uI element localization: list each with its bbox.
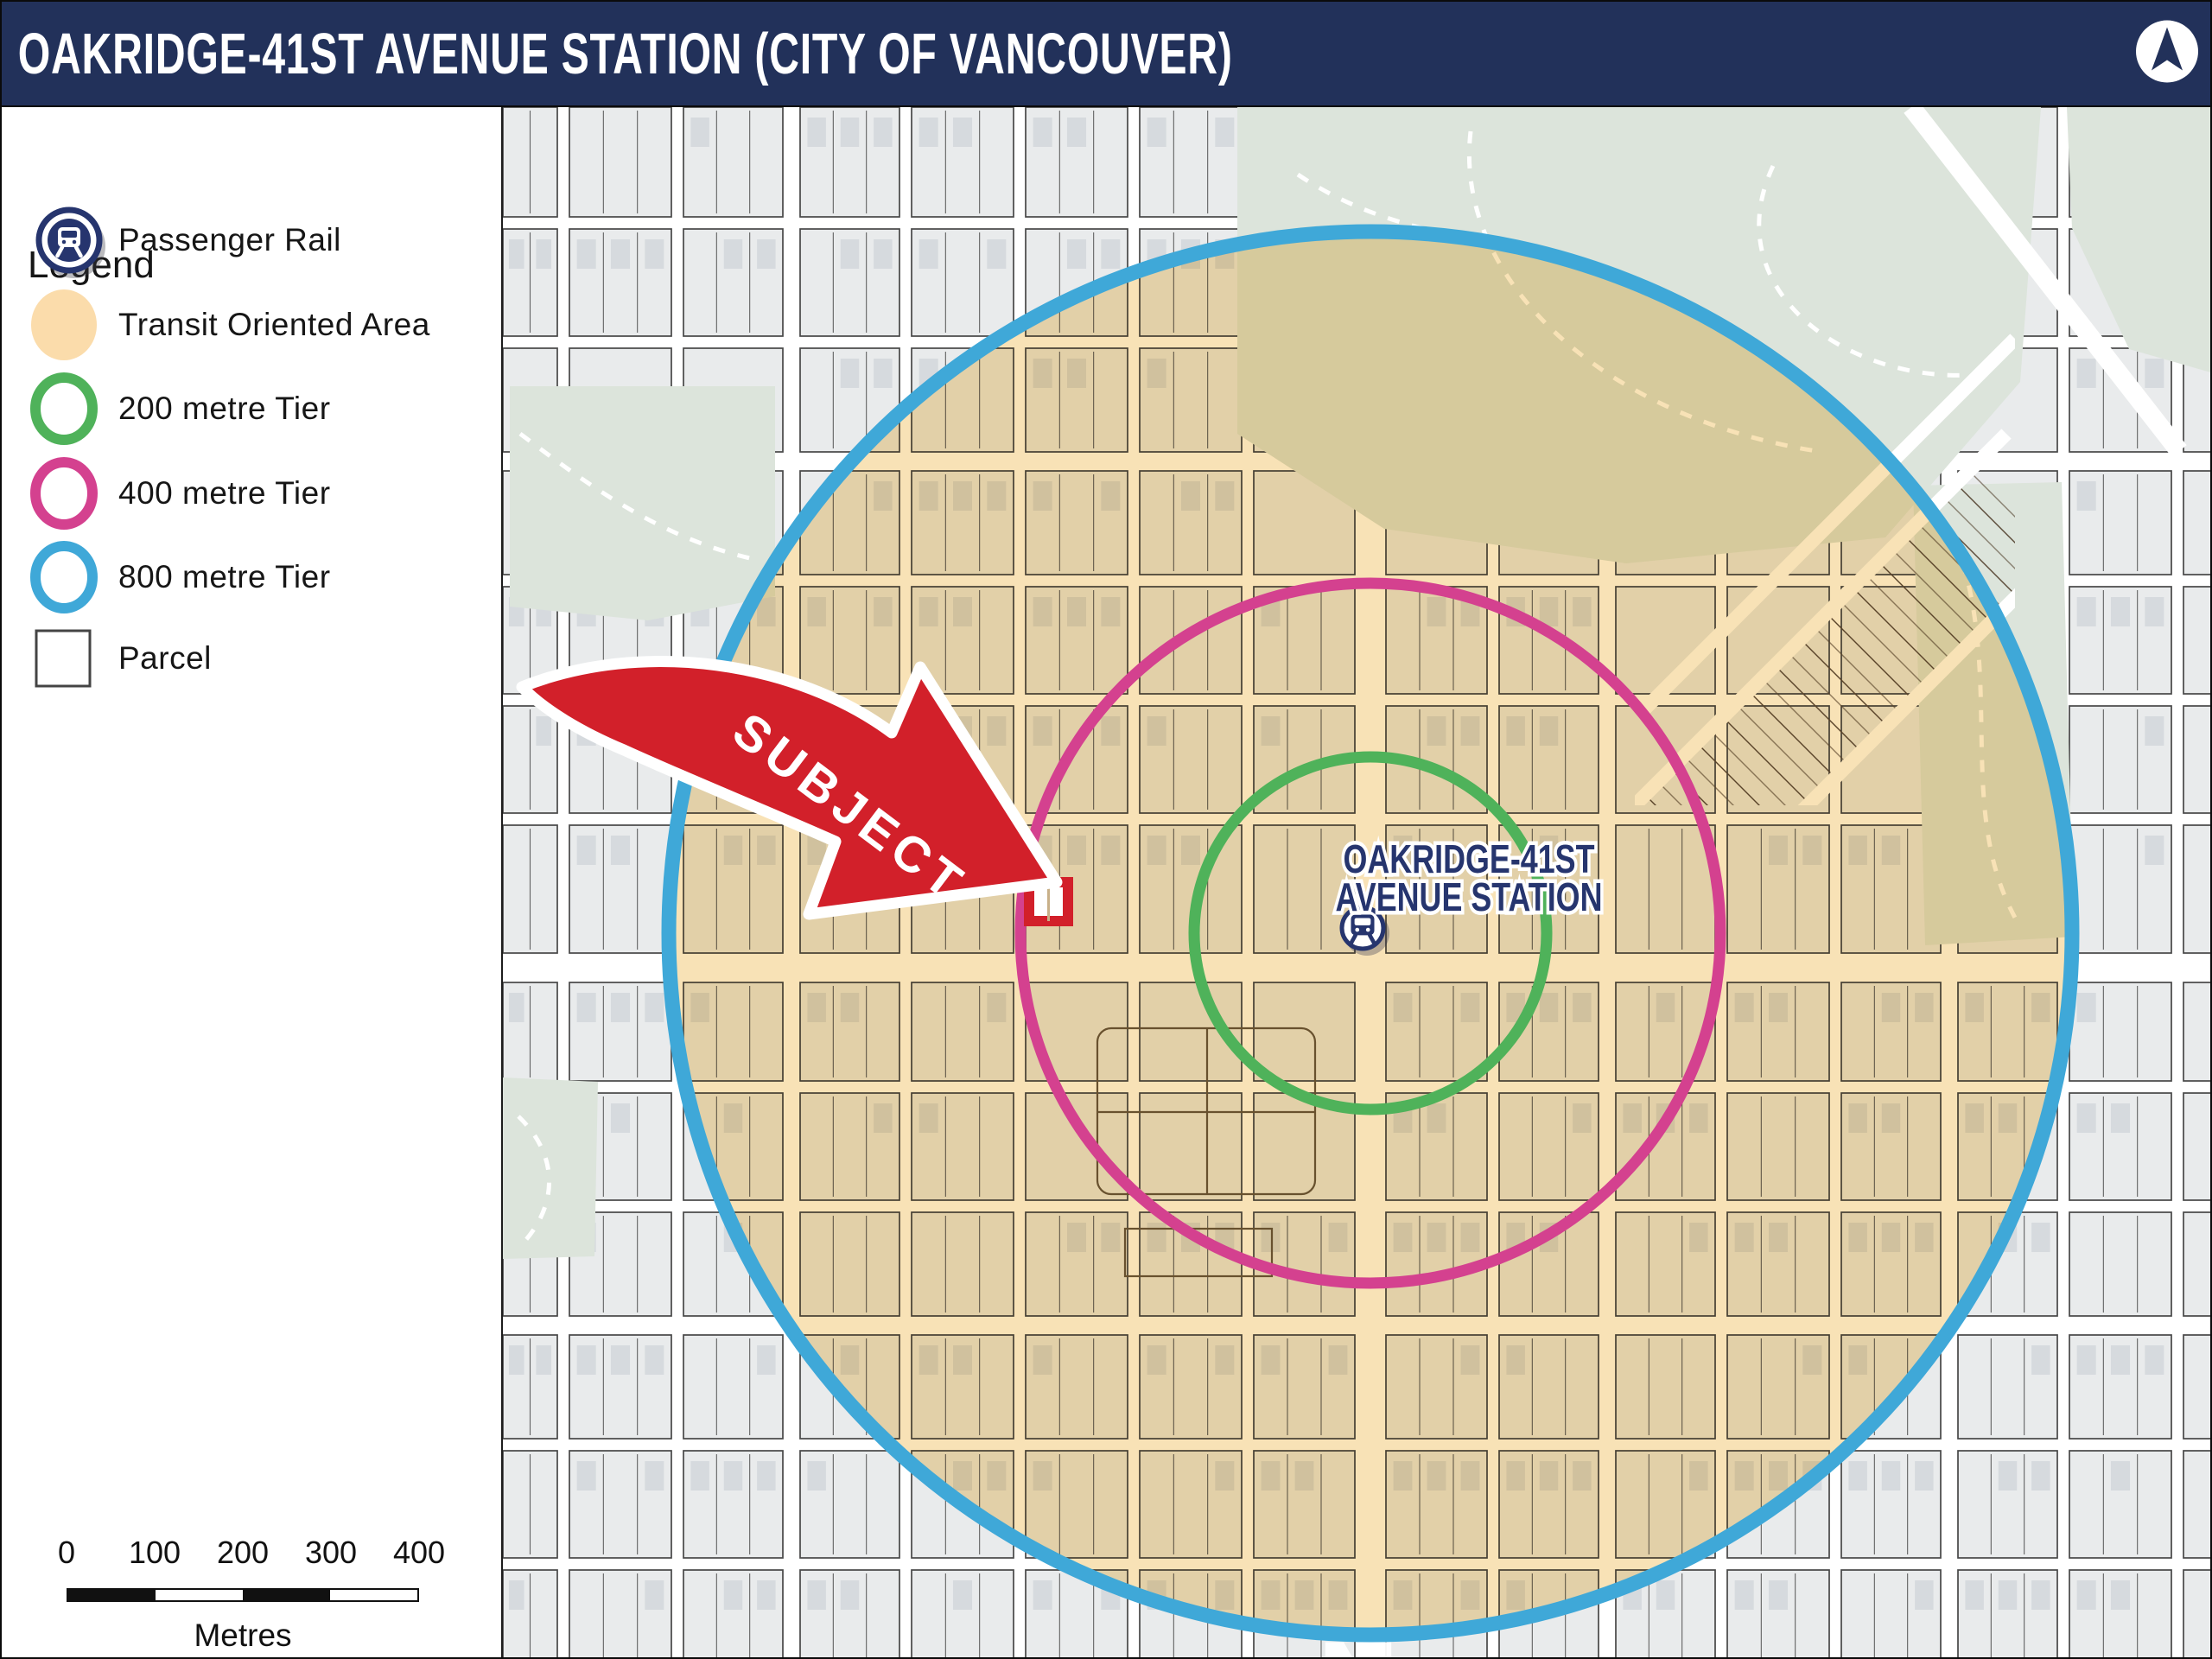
scale-tick: 300 [305, 1535, 357, 1571]
legend-item-label: 800 metre Tier [118, 559, 331, 595]
legend-item-200m: 200 metre Tier [28, 367, 494, 450]
toa-swatch [28, 285, 118, 365]
scale-unit-label: Metres [194, 1618, 291, 1654]
scale-bar: 0 100 200 300 400 Metres [2, 1535, 503, 1659]
legend-item-toa: Transit Oriented Area [28, 283, 494, 366]
legend-item-passenger-rail: Passenger Rail [28, 199, 494, 282]
tier-400-swatch [28, 454, 118, 533]
legend-item-label: 400 metre Tier [118, 475, 331, 512]
svg-text:AVENUE STATION: AVENUE STATION [1336, 875, 1603, 919]
scale-tick: 100 [129, 1535, 181, 1571]
scale-tick: 400 [393, 1535, 445, 1571]
station-label: OAKRIDGE-41ST AVENUE STATION [1336, 837, 1603, 919]
north-arrow-icon [2134, 19, 2200, 89]
north-letter: N [1318, 1618, 1399, 1659]
parcel-swatch [28, 619, 118, 698]
title-bar: OAKRIDGE-41ST AVENUE STATION (CITY OF VA… [2, 2, 2212, 107]
legend-item-label: Passenger Rail [118, 222, 341, 258]
rail-station-icon [28, 200, 118, 280]
map-canvas: SUBJECT OAKRIDGE-41ST AVENUE STATION [503, 107, 2212, 1659]
legend-item-label: Parcel [118, 640, 212, 677]
legend-item-800m: 800 metre Tier [28, 536, 494, 619]
map-figure: OAKRIDGE-41ST AVENUE STATION (CITY OF VA… [0, 0, 2212, 1659]
legend-item-parcel: Parcel [28, 617, 494, 700]
legend-item-label: 200 metre Tier [118, 391, 331, 427]
legend-panel: Legend Passenger Rail [2, 107, 503, 1659]
tier-800-swatch [28, 537, 118, 617]
tier-200-swatch [28, 369, 118, 448]
scale-tick: 0 [58, 1535, 75, 1571]
scale-tick: 200 [217, 1535, 269, 1571]
legend-item-label: Transit Oriented Area [118, 307, 430, 343]
legend-item-400m: 400 metre Tier [28, 452, 494, 535]
scale-bar-segments [67, 1588, 419, 1602]
page-title: OAKRIDGE-41ST AVENUE STATION (CITY OF VA… [2, 21, 1233, 87]
